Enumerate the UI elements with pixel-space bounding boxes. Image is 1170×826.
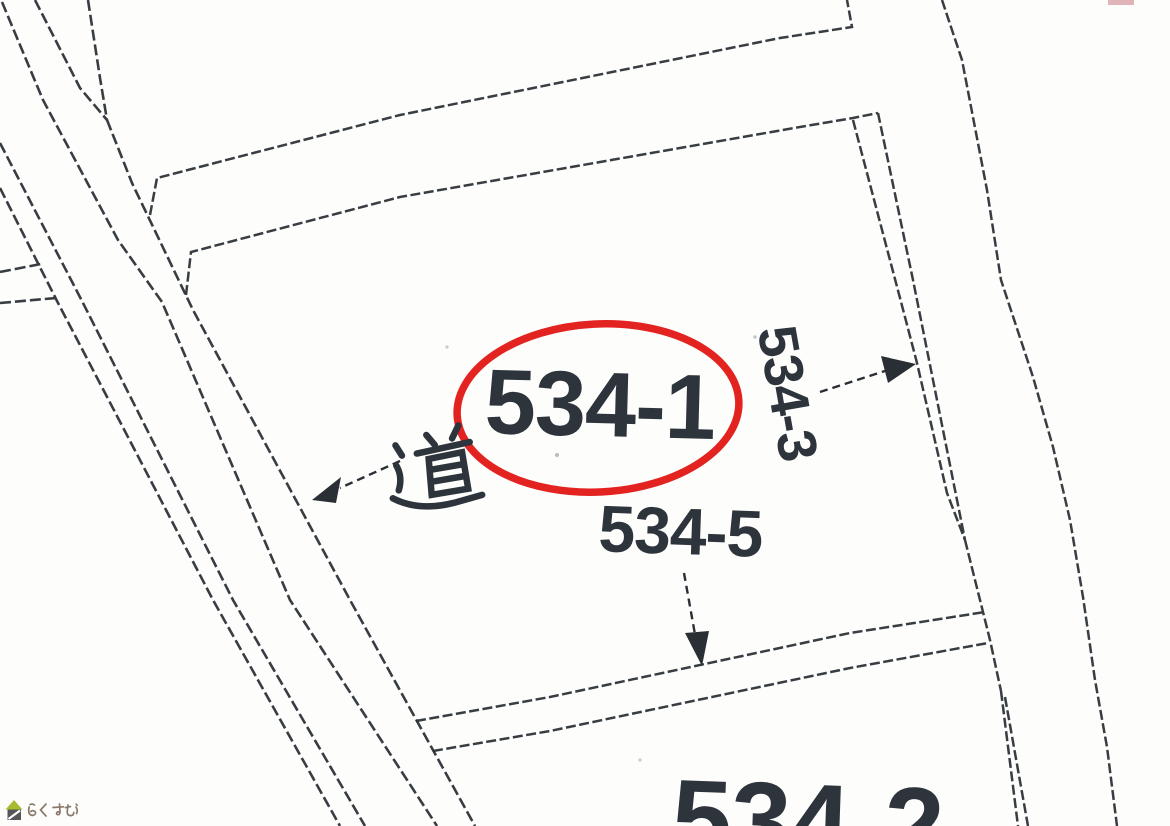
road-edge-line — [2, 2, 437, 826]
west-parcel-spur-line — [0, 264, 41, 272]
road-edge-line — [0, 188, 340, 826]
parcel-label-534-2: 534-2 — [643, 751, 972, 826]
arrow-shaft — [820, 370, 888, 392]
arrow-head — [685, 631, 709, 666]
east-road-edge-line — [942, 0, 1117, 826]
house-icon — [6, 800, 23, 820]
arrow-shaft — [684, 573, 696, 640]
west-parcel-spur-line — [0, 298, 56, 303]
parcel-534-5-arrow — [684, 573, 709, 666]
parcel-boundary — [186, 113, 878, 295]
parcel-label-534-1: 534-1 — [454, 348, 747, 462]
parcel-boundary — [416, 612, 985, 721]
road-edge-line — [0, 143, 365, 826]
road-edge-feeder-line — [88, 0, 107, 120]
parcel-boundary — [853, 120, 965, 540]
cadastral-map-page: 534-1 534-3 534-5 534-2 — [0, 0, 1170, 826]
arrow-head — [881, 356, 916, 383]
parcel-534-3-arrow — [820, 356, 916, 392]
arrow-head — [312, 477, 341, 503]
arrow-shaft — [340, 461, 400, 488]
parcel-boundary — [878, 113, 965, 540]
parcel-boundary — [150, 0, 852, 215]
road-arrow — [312, 461, 400, 503]
road-boundary-lines — [0, 0, 475, 826]
parcel-boundary — [433, 643, 988, 751]
parcel-label-534-5: 534-5 — [577, 490, 784, 571]
parcel-boundary — [965, 540, 1001, 691]
watermark-kana-text — [29, 804, 77, 816]
site-watermark — [6, 800, 78, 820]
